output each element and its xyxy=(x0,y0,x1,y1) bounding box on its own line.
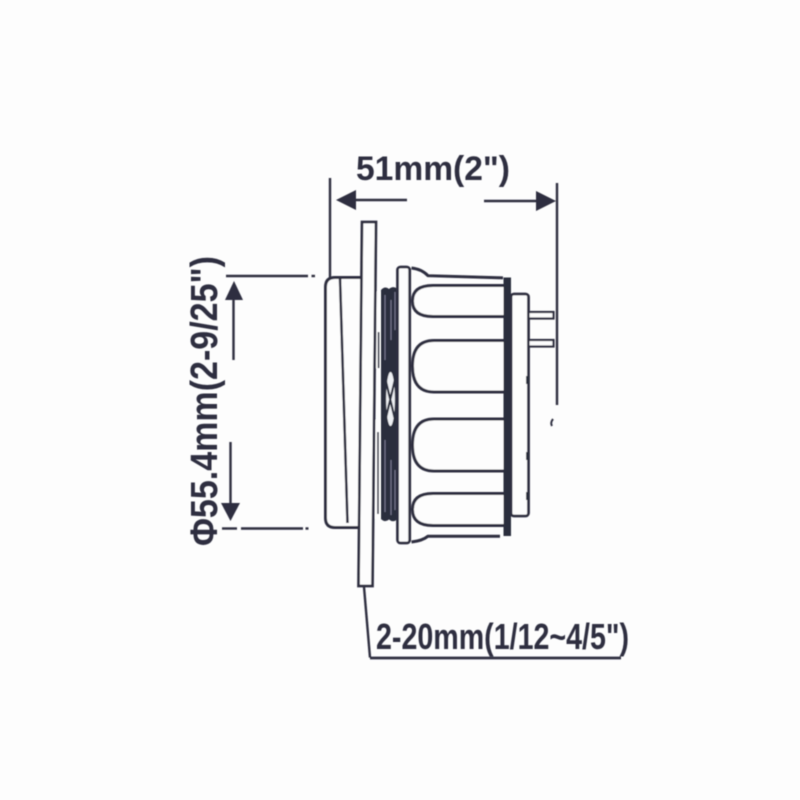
svg-text:2-20mm(1/12~4/5"): 2-20mm(1/12~4/5") xyxy=(376,616,629,657)
svg-text:51mm(2"): 51mm(2") xyxy=(356,150,510,188)
svg-text:Φ55.4mm(2-9/25"): Φ55.4mm(2-9/25") xyxy=(184,256,226,546)
